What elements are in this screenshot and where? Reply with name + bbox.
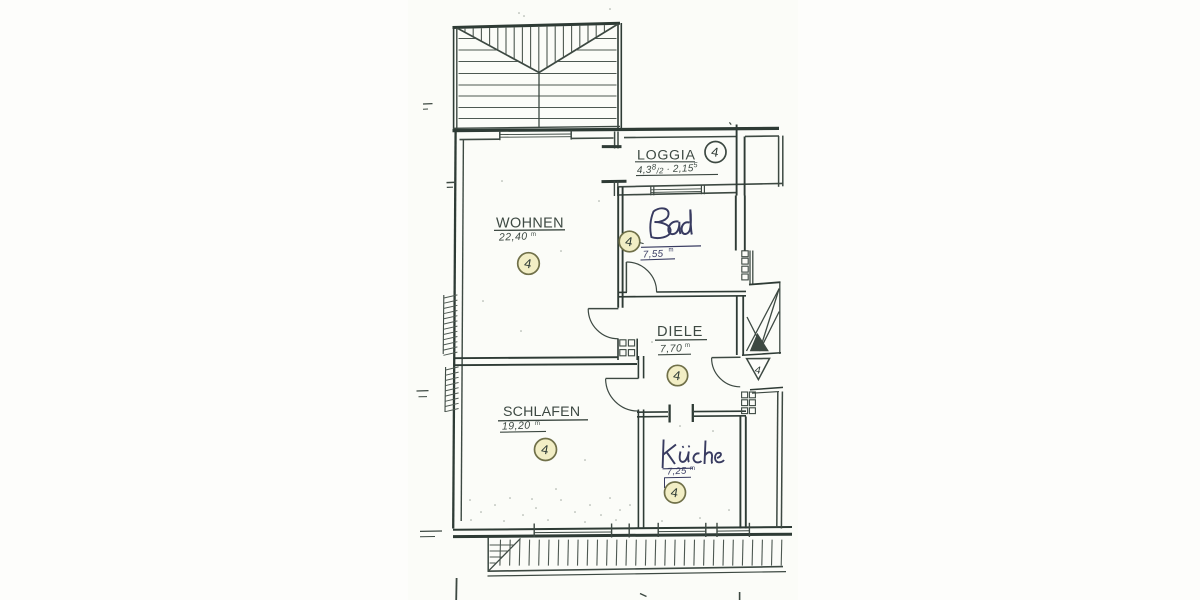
svg-text:LOGGIA: LOGGIA: [637, 147, 696, 163]
svg-text:22,40: 22,40: [498, 231, 528, 244]
svg-text:SCHLAFEN: SCHLAFEN: [503, 404, 580, 420]
svg-text:m: m: [535, 421, 540, 427]
svg-text:m: m: [685, 343, 690, 349]
svg-text:m: m: [669, 248, 674, 254]
svg-text:m: m: [690, 466, 695, 472]
svg-text:19,20: 19,20: [502, 420, 531, 433]
svg-text:m: m: [531, 232, 536, 238]
svg-text:7,70: 7,70: [660, 342, 683, 355]
svg-text:DIELE: DIELE: [657, 324, 703, 340]
svg-text:WOHNEN: WOHNEN: [496, 215, 564, 231]
svg-text:7,25: 7,25: [667, 466, 688, 478]
